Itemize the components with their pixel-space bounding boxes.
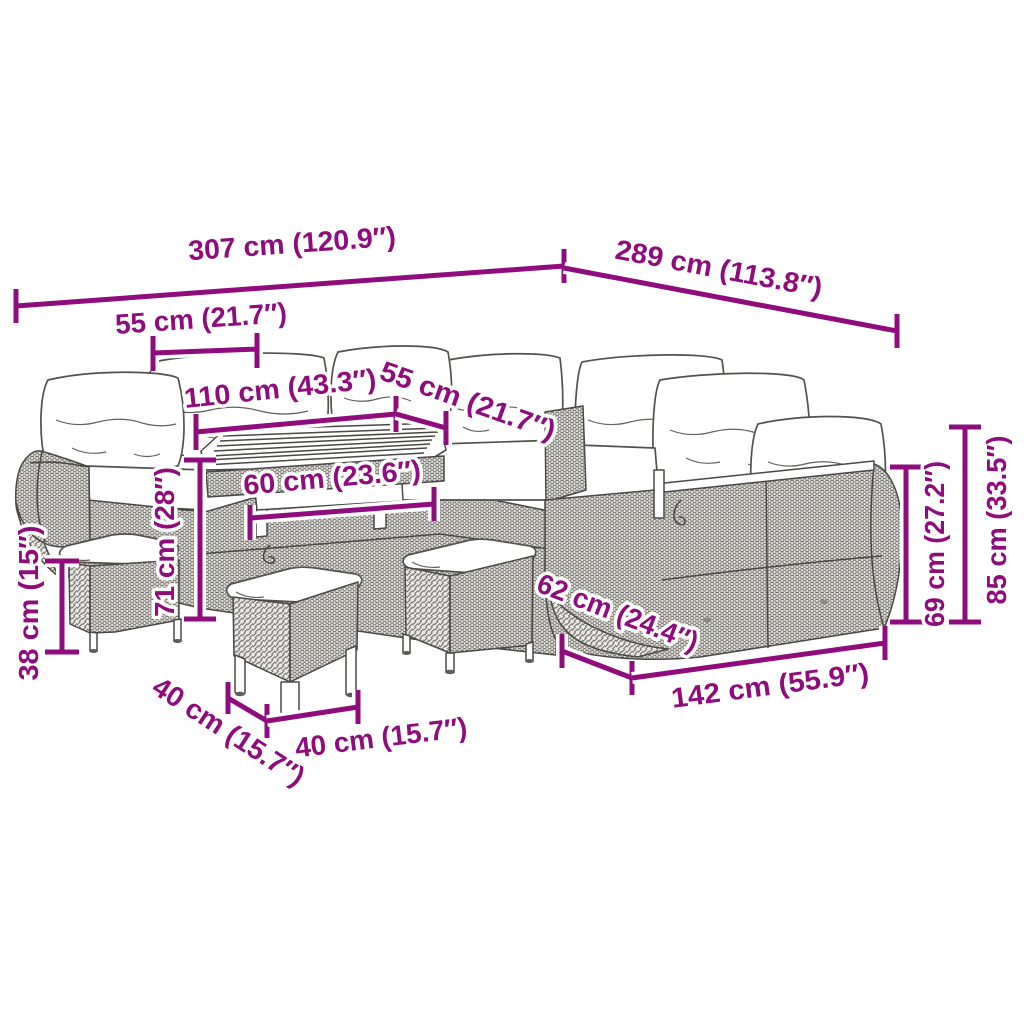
svg-text:38 cm (15″): 38 cm (15″) — [13, 526, 44, 681]
svg-text:71 cm (28″): 71 cm (28″) — [149, 467, 180, 617]
svg-text:85 cm (33.5″): 85 cm (33.5″) — [981, 436, 1012, 605]
svg-text:69 cm (27.2″): 69 cm (27.2″) — [919, 461, 950, 627]
